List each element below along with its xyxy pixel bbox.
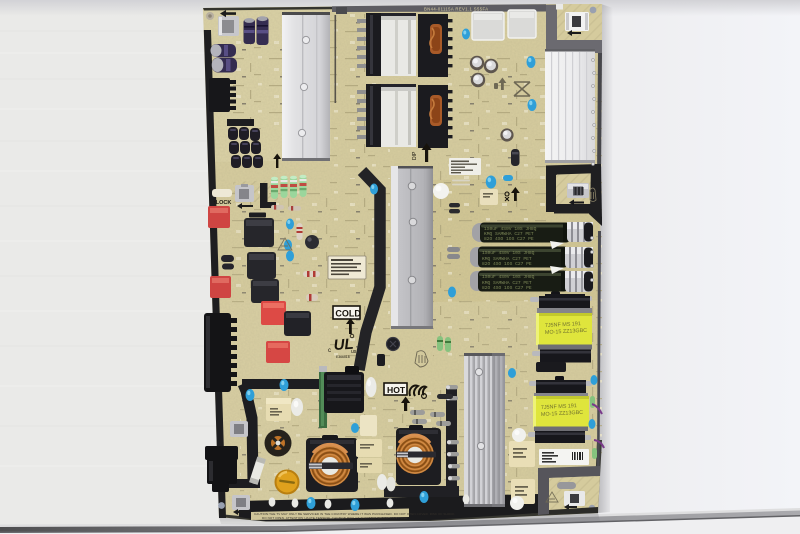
svg-text:COLD: COLD [335, 308, 361, 318]
svg-text:DO NOT OPEN. ATTENTION HAUTE T: DO NOT OPEN. ATTENTION HAUTE TENSION. CA… [262, 516, 408, 520]
svg-text:c: c [328, 348, 331, 354]
svg-text:↑LOCK: ↑LOCK [213, 200, 231, 206]
svg-text:1S0uF 4S0V 10S JH8Q: 1S0uF 4S0V 10S JH8Q [482, 250, 535, 256]
svg-text:E366518: E366518 [336, 355, 350, 359]
svg-text:1S0uF 4S0V 10S JH8Q: 1S0uF 4S0V 10S JH8Q [482, 274, 535, 280]
svg-text:82O 4SO 1OS C27 PE: 82O 4SO 1OS C27 PE [484, 236, 534, 242]
svg-text:us: us [351, 349, 357, 355]
svg-text:DIP: DIP [412, 151, 418, 160]
svg-text:BN44-01115A REV1.1 S55FA: BN44-01115A REV1.1 S55FA [424, 7, 488, 12]
svg-text:82O 4SO 1OS C27 PE: 82O 4SO 1OS C27 PE [482, 285, 532, 291]
svg-text:82O 4SO 1OS C27 PE: 82O 4SO 1OS C27 PE [482, 261, 532, 267]
svg-text:HOT: HOT [387, 385, 406, 395]
